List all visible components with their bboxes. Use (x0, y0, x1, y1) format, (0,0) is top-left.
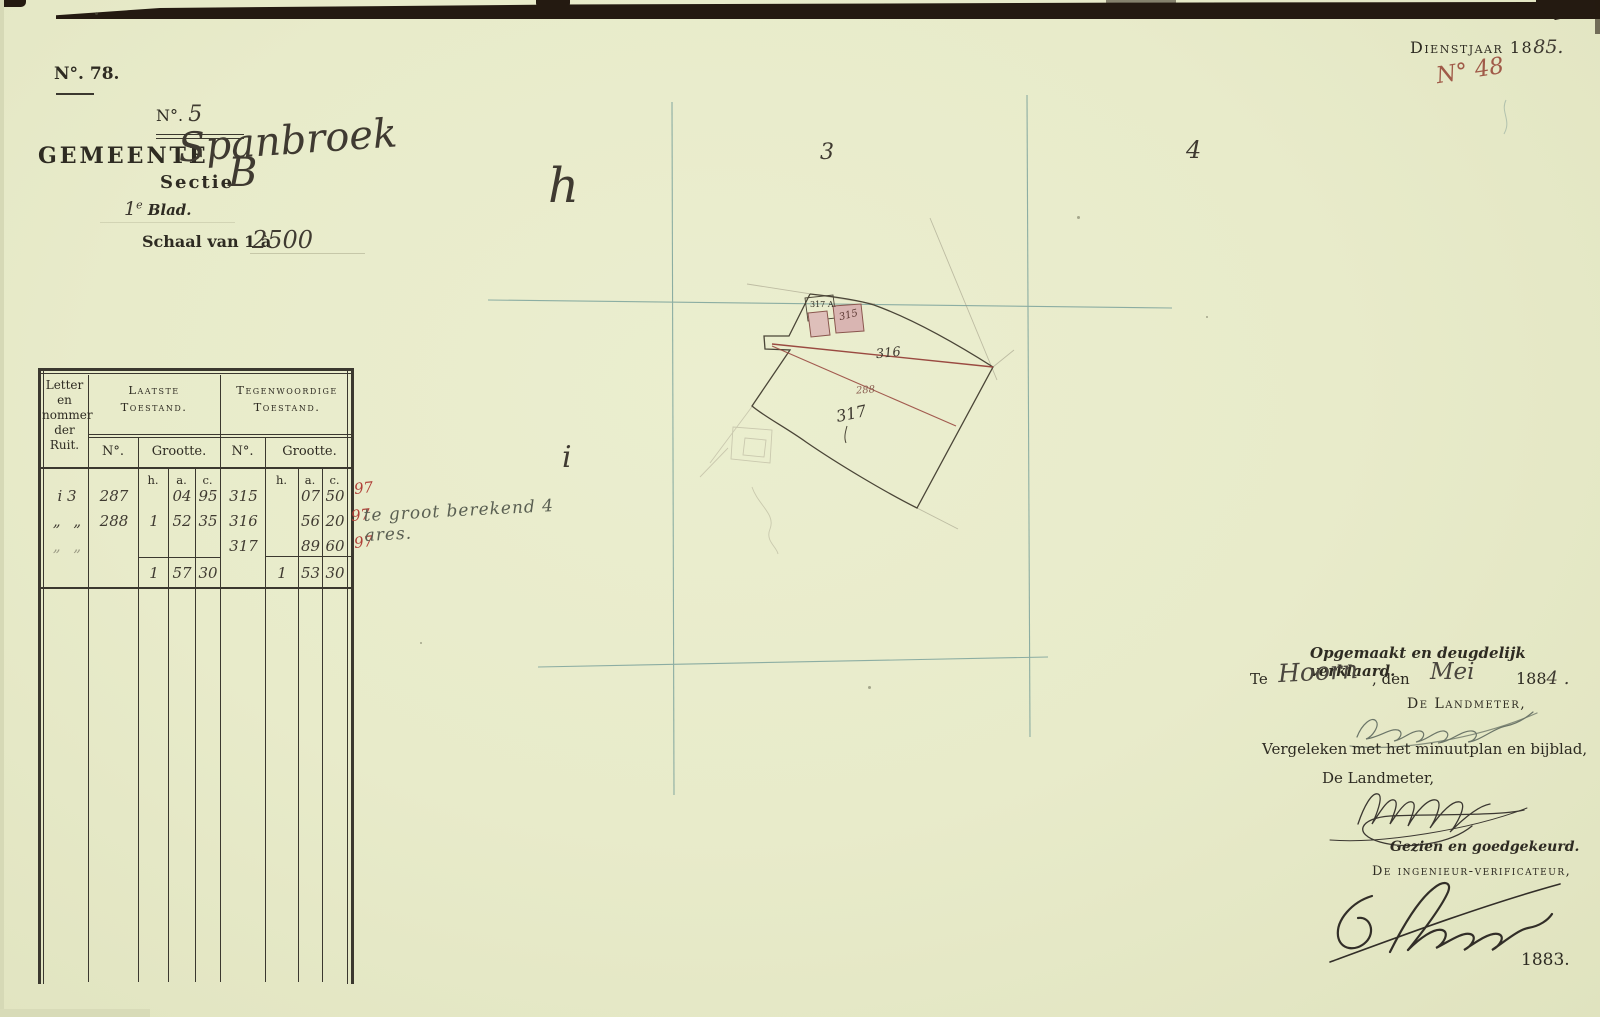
group-header-old: Laatste Toestand. (88, 382, 220, 416)
sheet-number: N°. 5 (156, 102, 202, 127)
row3-new-a: 89 (299, 534, 322, 558)
dossier-underline (56, 93, 94, 95)
grid-line-vertical-1 (672, 102, 674, 795)
grid-number-4: 4 (1186, 136, 1201, 164)
dienstjaar-label: Dienstjaar 18 (1410, 38, 1533, 57)
blad-sup: e (136, 199, 143, 212)
building-label-317a: 317 A. (810, 300, 836, 309)
row1-new-a: 07 (299, 484, 322, 508)
schaal-value: 2500 (252, 226, 313, 254)
total-old-h: 1 (140, 561, 168, 585)
blad-number: 1 (124, 198, 136, 220)
verificateur-label: De ingenieur-verificateur, (1372, 864, 1571, 879)
landmeter-caps-label: De Landmeter, (1407, 696, 1526, 712)
year-line: 1884 . (1516, 668, 1569, 689)
row1-old-c: 95 (196, 484, 220, 508)
ruit-column-header: Letter en nommer der Ruit. (42, 378, 87, 453)
te-label: Te (1250, 670, 1268, 688)
grid-number-3: 3 (820, 140, 834, 165)
construction-line (993, 350, 1014, 367)
paper-edge-left (0, 0, 4, 1017)
row1-ruit: i 3 (46, 484, 88, 508)
scan-edge-right (1595, 0, 1600, 34)
total-old-c: 30 (196, 561, 220, 585)
row2-old-a: 52 (169, 509, 195, 533)
grid-letter-h: h (548, 158, 579, 214)
sectie-label: Sectie (160, 172, 234, 193)
sketch-line (700, 448, 728, 477)
blad-label: Blad. (148, 201, 192, 219)
construction-line (930, 218, 997, 380)
hac-old-h: h. (138, 473, 168, 487)
paper-edge-bottom-left (0, 1009, 150, 1017)
mutation-table: Letter en nommer der Ruit. Laatste Toest… (38, 368, 354, 984)
sheet-number-label: N°. (156, 106, 183, 125)
dossier-number: N°. 78. (54, 64, 119, 84)
sketch-line (752, 487, 778, 554)
new-no-header: N°. (220, 444, 265, 459)
cadastral-sheet: N°. 78. Dienstjaar 1885. N° 48 N°. 5 GEM… (0, 0, 1600, 1017)
total-new-a: 53 (299, 561, 322, 585)
row1-old-a: 04 (169, 484, 195, 508)
scan-edge-top-mid (1106, 0, 1176, 4)
grid-line-vertical-2 (1027, 95, 1030, 737)
approved-line: Gezien en goedgekeurd. (1390, 839, 1579, 855)
group-header-new: Tegenwoordige Toestand. (220, 382, 354, 416)
den-label: , den (1372, 670, 1410, 688)
total-old-a: 57 (169, 561, 195, 585)
row3-ruit: „ „ (46, 534, 88, 558)
parcel-label-316: 316 (875, 345, 901, 363)
hac-new-h: h. (265, 473, 298, 487)
new-grootte-header: Grootte. (265, 444, 354, 459)
month-name: Mei (1430, 659, 1475, 685)
bottom-year: 1883. (1521, 950, 1570, 970)
row2-new-c: 20 (323, 509, 347, 533)
row3-new-no: 317 (222, 534, 265, 558)
parcel-317-flourish (845, 426, 847, 443)
construction-line (917, 508, 958, 529)
sketch-building-outline (743, 438, 766, 457)
total-new-c: 30 (323, 561, 347, 585)
total-new-h: 1 (266, 561, 298, 585)
signature-landmeter-2 (1330, 794, 1527, 846)
row2-old-c: 35 (196, 509, 220, 533)
old-parcel-label-288: 288 (856, 384, 876, 396)
row1-new-c: 50 (323, 484, 347, 508)
row2-old-h: 1 (140, 509, 168, 533)
old-grootte-header: Grootte. (138, 444, 220, 459)
grid-letter-i: i (562, 440, 572, 475)
check-mark-row1: 97 (353, 478, 374, 498)
sketch-line (710, 404, 754, 463)
landmeter-plain-label: De Landmeter, (1322, 769, 1434, 787)
compare-line: Vergeleken met het minuutplan en bijblad… (1262, 740, 1587, 758)
row2-new-no: 316 (222, 509, 265, 533)
row1-new-no: 315 (222, 484, 265, 508)
building-fill-left (808, 311, 830, 337)
year-script: 4 . (1547, 668, 1570, 689)
grid-line-horizontal-2 (538, 657, 1048, 667)
row2-ruit: „ „ (46, 509, 88, 533)
row2-new-a: 56 (299, 509, 322, 533)
scan-edge-top-blob (536, 0, 570, 9)
dienstjaar-year-script: 85. (1533, 36, 1563, 58)
sectie-value: B (228, 150, 257, 196)
parcel-316-317-outline (752, 294, 993, 508)
old-no-header: N°. (88, 444, 138, 459)
row1-old-no: 287 (90, 484, 138, 508)
place-name: Hoorn (1277, 655, 1358, 688)
row3-new-c: 60 (323, 534, 347, 558)
row2-old-no: 288 (90, 509, 138, 533)
ink-squiggle (1504, 100, 1507, 134)
blad-line: 1e Blad. (124, 198, 192, 220)
year-print: 188 (1516, 669, 1547, 688)
